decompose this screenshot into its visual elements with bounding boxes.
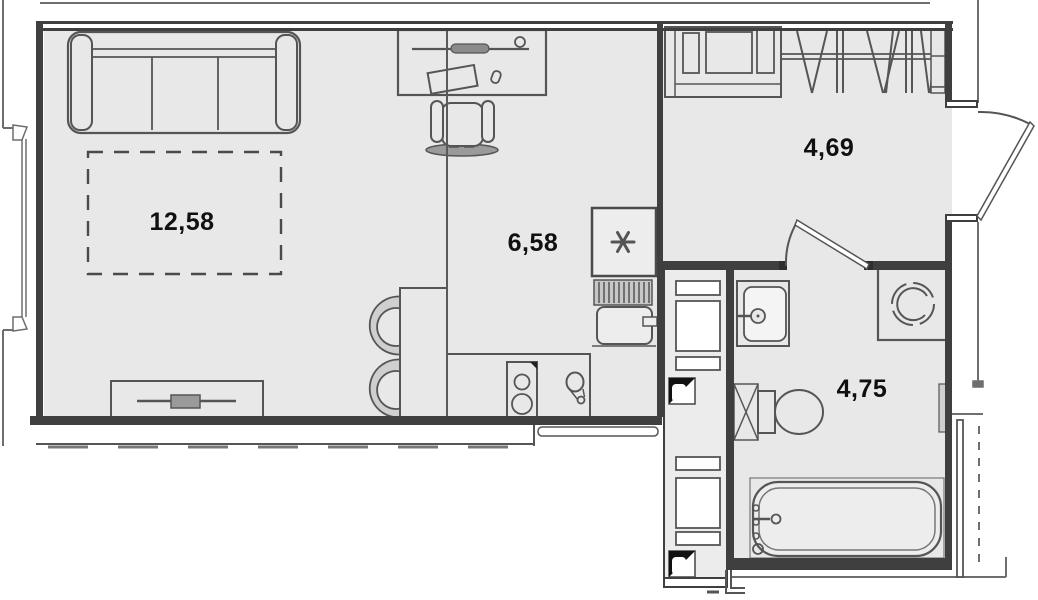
wall-bath-left [727, 268, 734, 570]
chair-arm-right [482, 101, 494, 142]
pier-base [931, 87, 945, 93]
refrigerator-icon [592, 208, 656, 276]
entrance-lintel-top [946, 101, 977, 107]
cabinet-box-b [706, 32, 752, 73]
shaft-bottom-bar [664, 578, 727, 587]
cabinet-box-a [683, 33, 699, 73]
drying-rack-icon [594, 280, 652, 305]
bathtub-icon [750, 478, 944, 558]
wall-bath-bottom [726, 558, 952, 570]
tv-stand-center-box [171, 395, 200, 408]
kitchen-area-label: 6,58 [508, 229, 559, 257]
appliance-handle [643, 317, 657, 326]
bathroom-area-label: 4,75 [837, 375, 888, 403]
wall-foot-lower [13, 317, 27, 331]
dining-table-icon [400, 288, 447, 417]
sink-drain [578, 397, 585, 404]
desk-cup [515, 37, 525, 47]
wall-hall-bath-left [657, 261, 783, 270]
sofa-icon [68, 32, 300, 133]
vent-shaft-icon-upper [669, 378, 695, 404]
hallway-area-label: 4,69 [804, 134, 855, 162]
chair-arm-left [431, 101, 443, 142]
entrance-opening-floor [945, 108, 952, 215]
floor-plan-page: 12,58 6,58 4,69 4,75 [0, 0, 1038, 600]
wall-top-inner [36, 28, 953, 31]
duct-rail [538, 427, 658, 436]
desk-icon [398, 30, 546, 95]
sofa-armrest-right [276, 35, 297, 130]
office-chair-icon [426, 101, 498, 156]
wall-foot-upper [13, 125, 27, 140]
bath-corner-steps [726, 570, 745, 593]
under-counter-appliance-icon [597, 307, 657, 344]
wall-bottom [30, 416, 662, 425]
wall-foot-right [973, 381, 983, 387]
entrance-door [946, 101, 1034, 221]
stove-burner-small [515, 375, 530, 390]
wall-right-upper [945, 21, 952, 108]
floor-plan: 12,58 6,58 4,69 4,75 [0, 0, 1038, 600]
stove-burner-large [512, 394, 532, 414]
shelf-cabinet-icon [665, 27, 781, 97]
wall-left [36, 21, 43, 424]
chair-seat [442, 103, 483, 146]
washer-body [878, 268, 948, 340]
washbasin-icon [737, 281, 789, 346]
sofa-armrest-left [71, 35, 92, 130]
entrance-lintel-bottom [946, 215, 977, 221]
tv-stand-icon [111, 381, 263, 421]
desk-pen-body [451, 44, 489, 53]
toilet-bowl [775, 390, 823, 434]
wardrobe-end-pier [931, 30, 945, 93]
wall-niche [939, 384, 946, 432]
living-room-area-label: 12,58 [149, 208, 214, 236]
entrance-door-leaf [977, 122, 1034, 220]
sofa-body [68, 32, 300, 133]
bath-door-opening-floor [785, 261, 866, 271]
wall-hall-bath-right [866, 261, 952, 270]
entrance-door-arc [978, 112, 1030, 124]
pier-box [931, 30, 945, 87]
washing-machine-icon [878, 268, 948, 340]
wall-top-outer [36, 21, 953, 24]
utility-shaft-column [664, 268, 727, 592]
wall-outer-right-lower [957, 420, 963, 577]
wall-kitchen-hall-divider [657, 24, 663, 417]
lower-balcony-band [36, 424, 658, 447]
vent-shaft-icon-lower [669, 551, 695, 577]
basin-faucet-dot [757, 315, 760, 318]
toilet-tank [758, 391, 775, 433]
stove-icon [507, 362, 537, 417]
cabinet-box-c [757, 30, 774, 73]
